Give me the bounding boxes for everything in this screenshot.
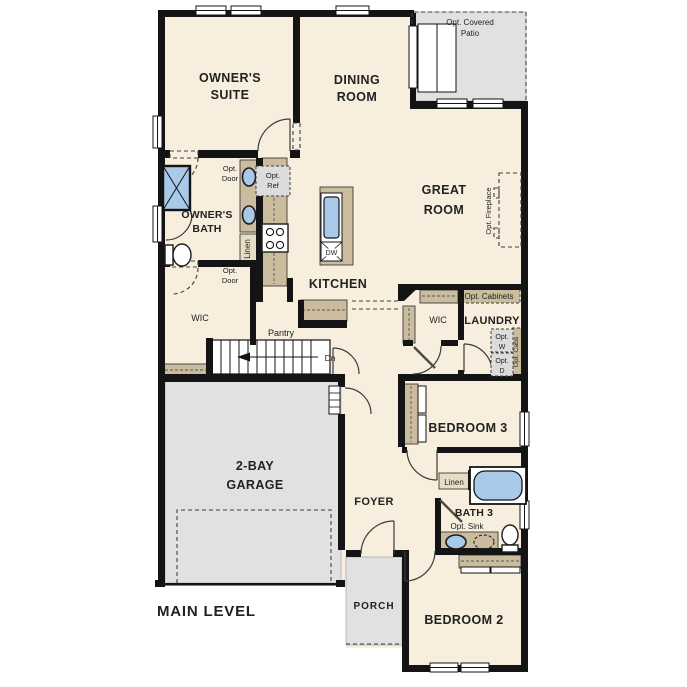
kitchen-peninsula: [300, 300, 347, 321]
bedroom2-closet-sliders: [461, 567, 520, 573]
label-opt-fireplace: Opt. Fireplace: [484, 187, 493, 234]
owners-bath-sink-2: [243, 206, 256, 224]
label-kitchen: KITCHEN: [309, 277, 367, 291]
island-sink: [321, 193, 342, 242]
patio-line2: Patio: [461, 29, 480, 38]
optdoor1-line2: Door: [222, 174, 239, 183]
label-wic-hall: WIC: [429, 315, 447, 325]
owners-bath-sink-1: [243, 168, 256, 186]
label-opt-door-wic: Opt. Door: [222, 266, 239, 285]
floor-plan-svg: OWNER'S SUITE DINING ROOM Opt. Covered P…: [0, 0, 687, 687]
owners-bath-toilet: [165, 244, 191, 266]
obath-line2: BATH: [192, 223, 221, 235]
dining-line2: ROOM: [337, 90, 378, 104]
great-line1: GREAT: [422, 183, 467, 197]
optw-line2: W: [499, 344, 506, 351]
patio-line1: Opt. Covered: [446, 18, 494, 27]
label-opt-cabs: Opt. Cabs: [513, 336, 520, 367]
obath-line1: OWNER'S: [181, 209, 232, 221]
label-linen-owner: Linen: [243, 239, 252, 259]
bath3-tub: [470, 467, 526, 504]
window: [473, 99, 503, 108]
label-opt-sink: Opt. Sink: [451, 522, 485, 531]
optdoor2-line1: Opt.: [223, 266, 237, 275]
patio-sliding-door: [409, 24, 456, 92]
optref-line1: Opt.: [266, 171, 280, 180]
garage-line1: 2-BAY: [236, 459, 275, 473]
label-dishwasher: DW: [326, 250, 338, 257]
shower-fixture: [163, 166, 190, 210]
owners-suite-line2: SUITE: [211, 88, 250, 102]
label-pantry: Pantry: [268, 328, 295, 338]
window: [437, 99, 467, 108]
label-foyer: FOYER: [354, 496, 393, 508]
window: [461, 663, 489, 672]
window: [336, 6, 369, 15]
bath3-toilet: [502, 525, 518, 552]
optd-line1: Opt.: [495, 358, 508, 365]
optd-line2: D: [499, 368, 504, 375]
label-bath3: BATH 3: [455, 507, 493, 519]
window: [231, 6, 261, 15]
cooktop-fixture: [262, 224, 288, 252]
optdoor1-line1: Opt.: [223, 164, 237, 173]
bath3-sink: [446, 535, 466, 549]
label-opt-door-bath: Opt. Door: [222, 164, 239, 183]
label-linen-bath3: Linen: [444, 478, 464, 487]
label-opt-ref: Opt. Ref: [266, 171, 280, 190]
window: [430, 663, 458, 672]
label-stairs-dn: Dn: [325, 353, 336, 363]
window: [520, 412, 529, 446]
dining-line1: DINING: [334, 73, 380, 87]
window: [196, 6, 226, 15]
great-line2: ROOM: [424, 203, 465, 217]
optdoor2-line2: Door: [222, 276, 239, 285]
window: [520, 501, 529, 529]
optref-line2: Ref: [267, 181, 280, 190]
stairs: [212, 340, 330, 374]
garage-line2: GARAGE: [226, 478, 283, 492]
label-main-level: MAIN LEVEL: [157, 603, 256, 620]
owners-suite-line1: OWNER'S: [199, 71, 261, 85]
window: [153, 116, 162, 148]
window: [153, 206, 162, 242]
label-bedroom2: BEDROOM 2: [424, 613, 503, 627]
label-opt-cabinets: Opt. Cabinets: [465, 292, 514, 301]
floor-plan-page: OWNER'S SUITE DINING ROOM Opt. Covered P…: [0, 0, 687, 687]
label-bedroom3: BEDROOM 3: [428, 421, 507, 435]
wic-hall-shelf-top: [420, 290, 458, 303]
label-wic-owner: WIC: [191, 313, 209, 323]
bedroom2-closet-shelf: [459, 555, 521, 568]
label-laundry: LAUNDRY: [464, 315, 520, 327]
label-porch: PORCH: [353, 601, 394, 612]
optw-line1: Opt.: [495, 334, 508, 341]
